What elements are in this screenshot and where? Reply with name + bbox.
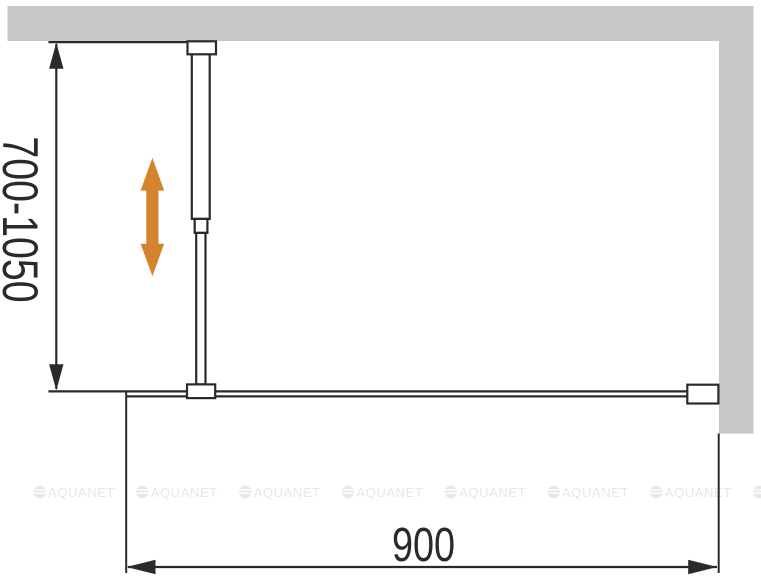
svg-text:900: 900 — [392, 519, 455, 572]
svg-text:700-1050: 700-1050 — [0, 136, 49, 302]
svg-text:AQUANET: AQUANET — [151, 485, 218, 500]
svg-text:AQUANET: AQUANET — [48, 485, 115, 500]
svg-text:AQUANET: AQUANET — [254, 485, 321, 500]
svg-text:AQUANET: AQUANET — [562, 485, 629, 500]
svg-text:AQUANET: AQUANET — [459, 485, 526, 500]
svg-text:AQUANET: AQUANET — [665, 485, 732, 500]
svg-text:AQUANET: AQUANET — [356, 485, 423, 500]
